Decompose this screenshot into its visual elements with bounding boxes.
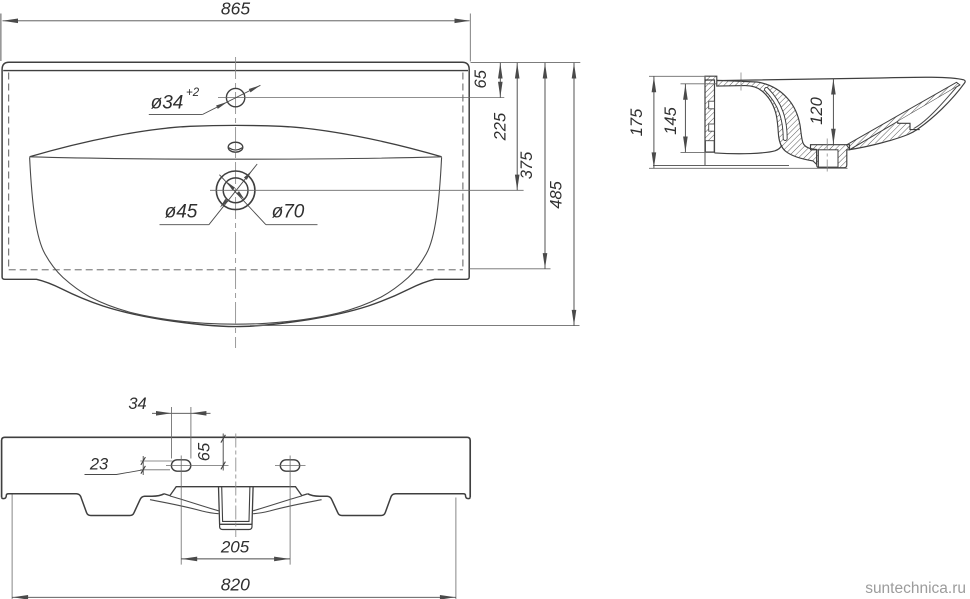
svg-text:485: 485 [548,180,566,208]
svg-text:225: 225 [492,112,510,141]
svg-text:ø34: ø34 [151,93,184,114]
svg-text:145: 145 [662,106,680,134]
svg-text:120: 120 [808,96,826,124]
svg-text:65: 65 [472,69,490,88]
svg-text:820: 820 [221,575,250,595]
svg-text:65: 65 [196,442,214,461]
svg-text:+2: +2 [186,87,200,99]
svg-text:865: 865 [221,0,250,19]
svg-text:23: 23 [89,456,109,474]
svg-text:375: 375 [518,151,536,179]
svg-text:175: 175 [628,108,646,136]
svg-text:34: 34 [128,395,146,413]
svg-text:ø70: ø70 [272,202,305,223]
svg-text:suntechnica.ru: suntechnica.ru [865,580,966,597]
svg-text:205: 205 [220,538,250,557]
svg-text:ø45: ø45 [165,202,198,223]
